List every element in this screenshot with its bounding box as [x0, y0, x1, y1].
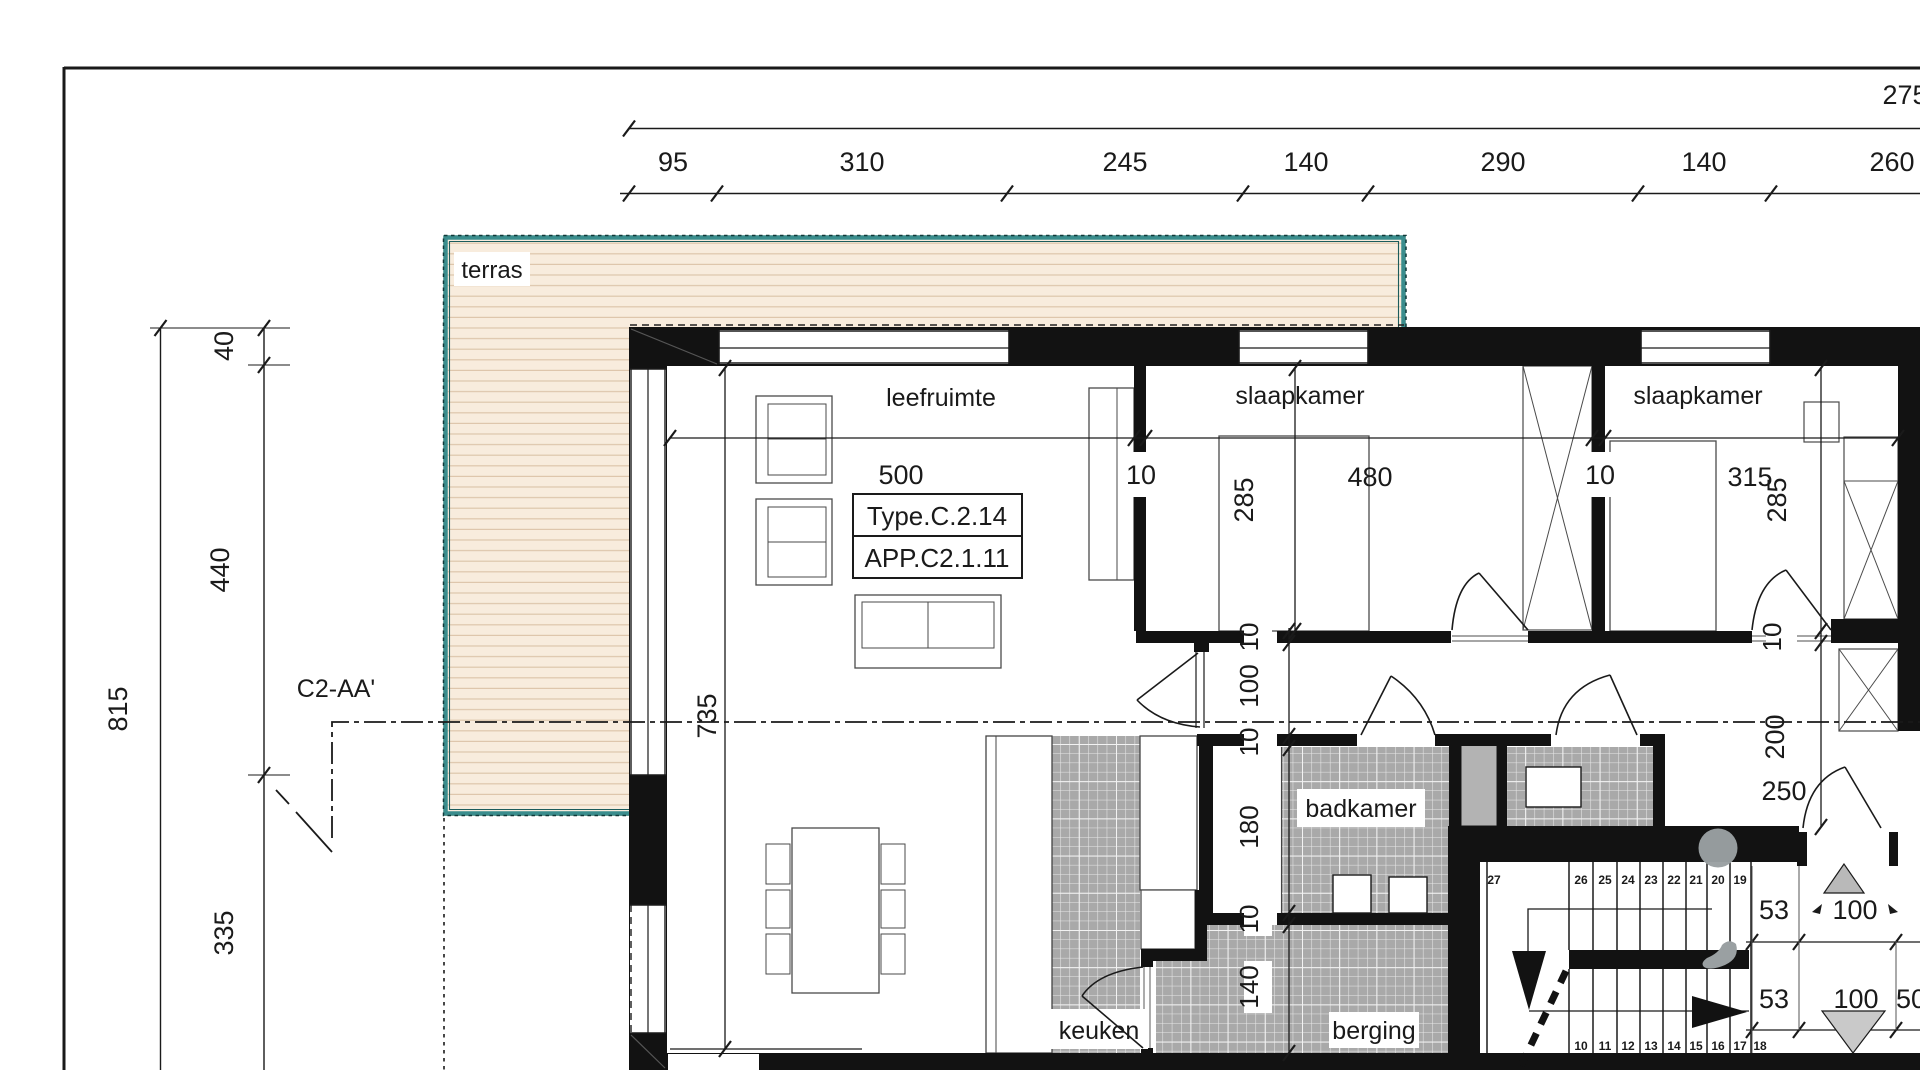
svg-text:95: 95 [658, 147, 688, 177]
svg-text:badkamer: badkamer [1305, 795, 1416, 823]
svg-text:50: 50 [1896, 984, 1920, 1014]
svg-text:10: 10 [1574, 1039, 1588, 1053]
svg-text:100: 100 [1234, 664, 1264, 707]
svg-text:24: 24 [1621, 873, 1635, 887]
svg-text:slaapkamer: slaapkamer [1633, 382, 1762, 410]
svg-text:815: 815 [103, 686, 133, 731]
svg-text:53: 53 [1759, 895, 1789, 925]
svg-text:100: 100 [1833, 984, 1878, 1014]
svg-text:285: 285 [1762, 477, 1792, 522]
svg-text:14: 14 [1667, 1039, 1681, 1053]
svg-text:200: 200 [1760, 714, 1790, 759]
svg-text:285: 285 [1229, 477, 1259, 522]
svg-text:260: 260 [1869, 147, 1914, 177]
svg-text:440: 440 [205, 547, 235, 592]
svg-text:53: 53 [1759, 984, 1789, 1014]
svg-text:21: 21 [1689, 873, 1703, 887]
svg-text:310: 310 [839, 147, 884, 177]
svg-text:10: 10 [1234, 728, 1264, 757]
svg-text:10: 10 [1234, 905, 1264, 934]
svg-text:C2-AA': C2-AA' [297, 675, 375, 703]
svg-text:250: 250 [1761, 776, 1806, 806]
svg-text:23: 23 [1644, 873, 1658, 887]
svg-text:140: 140 [1681, 147, 1726, 177]
svg-text:13: 13 [1644, 1039, 1658, 1053]
svg-text:335: 335 [209, 910, 239, 955]
svg-text:22: 22 [1667, 873, 1681, 887]
svg-text:10: 10 [1757, 623, 1787, 652]
svg-text:500: 500 [878, 460, 923, 490]
svg-text:10: 10 [1126, 460, 1156, 490]
svg-text:berging: berging [1332, 1017, 1415, 1045]
svg-text:275: 275 [1882, 80, 1920, 110]
svg-text:26: 26 [1574, 873, 1588, 887]
svg-text:slaapkamer: slaapkamer [1235, 382, 1364, 410]
svg-text:140: 140 [1283, 147, 1328, 177]
svg-text:40: 40 [209, 331, 239, 361]
svg-text:245: 245 [1102, 147, 1147, 177]
svg-text:480: 480 [1347, 462, 1392, 492]
svg-text:735: 735 [692, 693, 722, 738]
svg-text:11: 11 [1599, 1039, 1612, 1053]
svg-text:15: 15 [1689, 1039, 1703, 1053]
svg-text:12: 12 [1621, 1039, 1635, 1053]
svg-text:18: 18 [1753, 1039, 1767, 1053]
svg-text:25: 25 [1598, 873, 1612, 887]
svg-text:APP.C2.1.11: APP.C2.1.11 [864, 543, 1009, 573]
svg-text:100: 100 [1832, 895, 1877, 925]
svg-text:Type.C.2.14: Type.C.2.14 [867, 501, 1007, 531]
svg-text:19: 19 [1733, 873, 1747, 887]
svg-text:terras: terras [461, 257, 522, 284]
svg-text:290: 290 [1480, 147, 1525, 177]
svg-text:140: 140 [1234, 965, 1264, 1008]
svg-text:keuken: keuken [1059, 1017, 1140, 1045]
svg-text:leefruimte: leefruimte [886, 384, 996, 412]
svg-text:10: 10 [1585, 460, 1615, 490]
svg-text:17: 17 [1733, 1039, 1747, 1053]
svg-text:20: 20 [1711, 873, 1725, 887]
svg-text:27: 27 [1487, 873, 1501, 887]
svg-text:16: 16 [1711, 1039, 1725, 1053]
svg-text:180: 180 [1234, 805, 1264, 848]
svg-text:10: 10 [1234, 623, 1264, 652]
